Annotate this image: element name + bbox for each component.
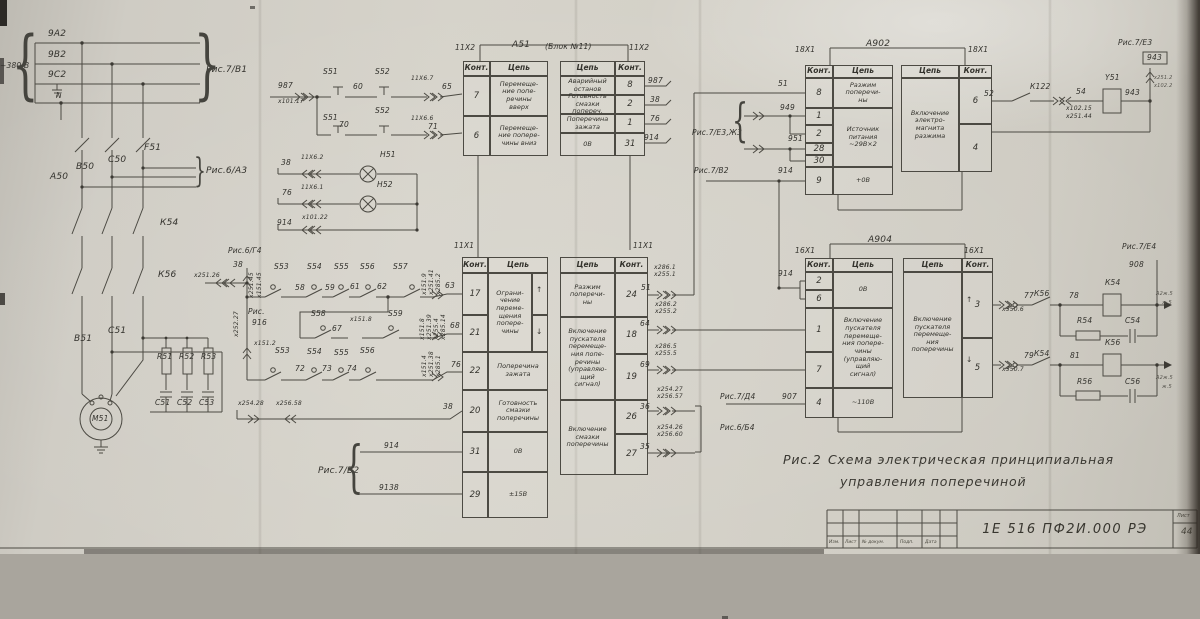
label-x11x1b: 11X1 <box>633 242 653 250</box>
label-brv2: { <box>344 446 364 491</box>
label-edge2a: А2ж.5 <box>1156 376 1173 381</box>
pin-cell: 4 <box>805 388 833 418</box>
label-x25658: х256.58 <box>276 401 302 407</box>
pin-cell: 31 <box>615 133 645 156</box>
label-ris7e3: Рис.7/Е3 <box>1118 39 1152 47</box>
label-w35: 35 <box>640 443 650 451</box>
table-cell: Цепь <box>560 257 615 273</box>
label-r53: R53 <box>201 353 216 361</box>
label-c56: С56 <box>1125 378 1140 386</box>
label-w78: 78 <box>1069 292 1079 300</box>
label-x2551: х255.1 <box>654 272 676 278</box>
label-ris7d4: Рис.7/Д4 <box>720 393 755 401</box>
label-w73: 73 <box>322 365 332 373</box>
label-x5506: х550.6 <box>1002 307 1024 313</box>
label-a904up: ↑ <box>966 296 972 304</box>
label-k54c: К54 <box>1105 279 1120 287</box>
label-a50: А50 <box>50 173 68 182</box>
table-cell <box>532 273 548 315</box>
label-w81: 81 <box>1070 352 1080 360</box>
label-w74: 74 <box>347 365 357 373</box>
table-cell: Разжим поперечи- ны <box>833 78 893 108</box>
label-x11x1a: 11X1 <box>454 242 474 250</box>
label-t_a51: А51 <box>512 41 530 50</box>
label-s54a: S54 <box>307 263 322 271</box>
label-w60: 60 <box>353 83 363 91</box>
pin-cell: 21 <box>462 315 488 352</box>
pin-cell: 28 <box>805 143 833 155</box>
pin-cell: 24 <box>615 273 648 317</box>
label-ris6g4: Рис.6/Г4 <box>228 247 262 255</box>
label-r52: R52 <box>179 353 194 361</box>
table-cell: Включение пускателя перемеще- ния попере… <box>833 308 893 388</box>
table-cell: Включение пускателя перемеще- ния попере… <box>903 272 962 398</box>
label-w61: 61 <box>350 283 360 291</box>
label-x11x2b: 11X2 <box>629 44 649 52</box>
label-br380: { <box>12 34 39 95</box>
table-cell: ~110В <box>833 388 893 418</box>
label-w951: 951 <box>788 135 803 143</box>
label-w52: 52 <box>984 90 994 98</box>
label-w914e: 914 <box>778 167 793 175</box>
pin-cell: 2 <box>805 272 833 290</box>
label-w914d: 914 <box>778 270 793 278</box>
label-b51: В51 <box>74 335 92 344</box>
label-s53a: S53 <box>274 263 289 271</box>
scan-edge-shadow <box>84 549 824 554</box>
label-t_a51s: (Блок №11) <box>545 43 592 51</box>
label-x25145: х251.45 <box>249 272 255 298</box>
label-s57a: S57 <box>393 263 408 271</box>
title-block-code: 1Е 516 ПФ2И.000 РЭ <box>957 510 1173 548</box>
figure-number: Рис.2 <box>783 454 821 467</box>
label-c2: 9С2 <box>48 71 66 80</box>
table-cell: Поперечина зажата <box>560 114 615 133</box>
label-b2: 9В2 <box>48 51 66 60</box>
label-w58: 58 <box>295 284 305 292</box>
label-w987a: 987 <box>278 82 293 90</box>
label-x11x61: 11X6.1 <box>301 185 324 191</box>
table-cell: Конт. <box>805 65 833 78</box>
label-s56b: S56 <box>360 347 375 355</box>
label-x11x67: 11X6.7 <box>411 76 434 82</box>
label-k56c: К56 <box>1105 339 1120 347</box>
pin-cell: 3 <box>962 272 993 338</box>
label-w70: 70 <box>339 121 349 129</box>
label-r54: R54 <box>1077 317 1092 325</box>
pin-cell: 29 <box>462 472 488 518</box>
label-s56a: S56 <box>360 263 375 271</box>
label-c54: С54 <box>1125 317 1140 325</box>
label-w908: 908 <box>1129 261 1144 269</box>
label-ris7v2b: Рис.7/В2 <box>694 167 729 175</box>
label-b50: В50 <box>76 163 94 172</box>
label-x10215: х102.15 <box>1066 106 1092 112</box>
pin-cell: 1 <box>615 114 645 133</box>
label-s52a: S52 <box>375 68 390 76</box>
label-risl: Рис. <box>248 308 265 316</box>
connector-chevrons <box>216 72 1154 457</box>
table-cell: Конт. <box>615 257 648 273</box>
pin-cell: 8 <box>805 78 833 108</box>
label-t_a902: А902 <box>866 40 890 49</box>
table-cell: Цепь <box>833 258 893 272</box>
label-brv1: } <box>194 34 221 95</box>
table-cell: Источник питания ~29В×2 <box>833 108 893 167</box>
label-w907: 907 <box>782 393 797 401</box>
label-w38c: 38 <box>281 159 291 167</box>
label-w38b: 38 <box>443 403 453 411</box>
label-s58: S58 <box>311 310 326 318</box>
label-w71: 71 <box>428 123 438 131</box>
table-cell: Цепь <box>560 61 615 76</box>
table-cell: Цепь <box>833 65 893 78</box>
table-cell: Ограни- чение переме- щения попере- чины <box>488 273 532 352</box>
label-s53b: S53 <box>275 347 290 355</box>
label-w38a: 38 <box>233 261 243 269</box>
label-x2851: х285.1 <box>436 355 442 377</box>
label-s52b: S52 <box>375 107 390 115</box>
label-c52c: С52 <box>177 399 192 407</box>
label-x10122: х101.22 <box>302 215 328 221</box>
label-x2852: х285.2 <box>436 273 442 295</box>
table-cell: Цепь <box>903 258 962 272</box>
label-x5507: х550.7 <box>1002 367 1024 373</box>
table-cell: Включение смазки поперечины <box>560 400 615 475</box>
label-c51: С51 <box>108 327 126 336</box>
label-n: N <box>56 92 62 100</box>
label-w54: 54 <box>1076 88 1086 96</box>
label-f51: F51 <box>144 144 161 153</box>
label-x1022: х102.2 <box>1154 84 1172 89</box>
label-c16x1a: 16X1 <box>795 247 815 255</box>
table-cell: +0В <box>833 167 893 195</box>
caption-line2: управления поперечиной <box>840 476 1026 489</box>
label-w76c: 76 <box>451 361 461 369</box>
label-x28514: х285.14 <box>441 314 447 340</box>
label-w38d: 38 <box>650 96 660 104</box>
label-x1dn: ↓ <box>536 328 542 336</box>
pin-cell: 31 <box>462 432 488 472</box>
table-cell: Цепь <box>901 65 959 78</box>
table-cell: 0В <box>833 272 893 308</box>
table-cell: Разжим поперечи- ны <box>560 273 615 317</box>
label-k56: К56 <box>158 271 176 280</box>
pin-cell: 17 <box>462 273 488 315</box>
label-x11x62: 11X6.2 <box>301 155 324 161</box>
table-cell: ±15В <box>488 472 548 518</box>
label-c16x1b: 16X1 <box>964 247 984 255</box>
table-cell: 0В <box>560 133 615 156</box>
label-r56: R56 <box>1077 378 1092 386</box>
label-w9138: 9138 <box>379 484 399 492</box>
label-c51c: С51 <box>155 399 170 407</box>
label-w59: 59 <box>325 284 335 292</box>
label-w62: 62 <box>377 283 387 291</box>
table-cell: Готовность смазки поперечины <box>488 390 548 432</box>
label-w51: 51 <box>641 284 651 292</box>
label-w72: 72 <box>295 365 305 373</box>
table-cell: Цепь <box>490 61 548 76</box>
caption-line1: Схема электрическая принципиальная <box>828 454 1114 467</box>
label-w949: 949 <box>780 104 795 112</box>
pin-cell: 7 <box>805 352 833 388</box>
label-s59: S59 <box>388 310 403 318</box>
pin-cell: 27 <box>615 434 648 475</box>
table-cell: Перемеще- ние попе- речины вверх <box>490 76 548 116</box>
label-bra3: } <box>194 158 206 185</box>
label-c50: С50 <box>108 156 126 165</box>
label-t_a904: А904 <box>868 236 892 245</box>
table-cell: Конт. <box>462 257 488 273</box>
label-edge1a: А2ж.5 <box>1156 292 1173 297</box>
scan-edge-shadow <box>1176 0 1200 554</box>
pin-cell: 9 <box>805 167 833 195</box>
label-s55a: S55 <box>334 263 349 271</box>
label-w76b: 76 <box>650 115 660 123</box>
label-w64: 64 <box>640 320 650 328</box>
label-h52: Н52 <box>377 181 393 189</box>
label-k122: К122 <box>1030 83 1050 91</box>
table-cell: Конт. <box>805 258 833 272</box>
label-x25428a: х254.28 <box>238 401 264 407</box>
label-ris7e4: Рис.7/Е4 <box>1122 243 1156 251</box>
label-w987b: 987 <box>648 77 663 85</box>
label-r51: R51 <box>157 353 172 361</box>
label-w943b: 943 <box>1147 54 1162 62</box>
label-w77: 77 <box>1024 292 1034 300</box>
label-ris6a3: Рис.6/А3 <box>206 167 247 176</box>
label-w76a: 76 <box>282 189 292 197</box>
label-w916: 916 <box>252 319 267 327</box>
pin-cell: 2 <box>805 125 833 143</box>
label-m51: М51 <box>92 415 109 423</box>
table-cell: Готовность смазки попереч. <box>560 95 615 114</box>
table-cell: 0В <box>488 432 548 472</box>
label-x25660: х256.60 <box>657 432 683 438</box>
pin-cell: 5 <box>962 338 993 398</box>
pin-cell: 4 <box>959 124 992 172</box>
label-x15145: х151.45 <box>257 272 263 298</box>
stamp-col: Подп. <box>900 541 914 546</box>
label-w67: 67 <box>332 325 342 333</box>
label-c18x1b: 18X1 <box>968 46 988 54</box>
label-x10117: х101.17 <box>278 99 304 105</box>
pin-cell: 8 <box>615 76 645 95</box>
label-w63: 63 <box>445 282 455 290</box>
label-x2512: х251.2 <box>1154 76 1172 81</box>
pin-cell: 22 <box>462 352 488 390</box>
label-s55b: S55 <box>334 349 349 357</box>
table-cell: Конт. <box>463 61 490 76</box>
table-cell: Конт. <box>962 258 993 272</box>
table-cell: Поперечина зажата <box>488 352 548 390</box>
table-cell: Конт. <box>959 65 992 78</box>
pin-cell: 6 <box>805 290 833 308</box>
label-k54: К54 <box>160 219 178 228</box>
table-cell: Включение электро- магнита разжима <box>901 78 959 172</box>
label-x11x2a: 11X2 <box>455 44 475 52</box>
label-x1up: ↑ <box>536 286 542 294</box>
pin-cell: 6 <box>463 116 490 156</box>
pin-cell: 2 <box>615 95 645 114</box>
table-cell: Включение пускателя перемеще- ния попе- … <box>560 317 615 400</box>
table-cell: Конт. <box>615 61 645 76</box>
label-x2552: х255.2 <box>655 309 677 315</box>
pin-cell: 1 <box>805 308 833 352</box>
label-k56b: К56 <box>1034 290 1049 298</box>
pin-cell: 1 <box>805 108 833 125</box>
pin-cell: 20 <box>462 390 488 432</box>
label-w68: 68 <box>450 322 460 330</box>
label-x25144: х251.44 <box>1066 114 1092 120</box>
label-x25126: х251.26 <box>194 273 220 279</box>
label-h51: Н51 <box>380 151 396 159</box>
label-w914b: 914 <box>277 219 292 227</box>
label-edge2b: ж.5 <box>1162 385 1172 390</box>
label-w914a: 914 <box>384 442 399 450</box>
label-x25227: х252.27 <box>234 311 240 337</box>
stamp-col: Дата <box>925 541 937 546</box>
scanned-schematic-page: { "doc": { "caption_fig": "Рис.2", "capt… <box>0 0 1200 554</box>
label-c18x1a: 18X1 <box>795 46 815 54</box>
label-edge1b: ж.5 <box>1162 301 1172 306</box>
label-x25657: х256.57 <box>657 394 683 400</box>
label-w51b: 51 <box>778 80 788 88</box>
label-ris6b4: Рис.6/Б4 <box>720 424 755 432</box>
label-w69: 69 <box>640 361 650 369</box>
label-w943a: 943 <box>1125 89 1140 97</box>
stamp-col: № докум. <box>862 541 884 546</box>
label-w79: 79 <box>1024 352 1034 360</box>
label-c53c: С53 <box>199 399 214 407</box>
label-s51a: S51 <box>323 68 338 76</box>
stamp-col: Лист <box>845 541 856 546</box>
label-a2: 9А2 <box>48 30 66 39</box>
label-s54b: S54 <box>307 348 322 356</box>
table-cell: Цепь <box>488 257 548 273</box>
pin-cell: 7 <box>463 76 490 116</box>
stamp-col: Изм. <box>829 541 840 546</box>
label-w914c: 914 <box>644 134 659 142</box>
label-w36: 36 <box>640 403 650 411</box>
label-s51b: S51 <box>323 114 338 122</box>
label-a904dn: ↓ <box>966 356 972 364</box>
label-bre3: { <box>732 102 748 139</box>
table-cell: Перемеще- ние попере- чины вниз <box>490 116 548 156</box>
label-w65: 65 <box>442 83 452 91</box>
label-y51: Y51 <box>1105 74 1120 82</box>
label-x1512: х151.2 <box>254 341 276 347</box>
label-x2555: х255.5 <box>655 351 677 357</box>
label-x1518a: х151.8 <box>350 317 372 323</box>
pin-cell: 6 <box>959 78 992 124</box>
label-k54b: К54 <box>1034 350 1049 358</box>
pin-cell: 30 <box>805 155 833 167</box>
